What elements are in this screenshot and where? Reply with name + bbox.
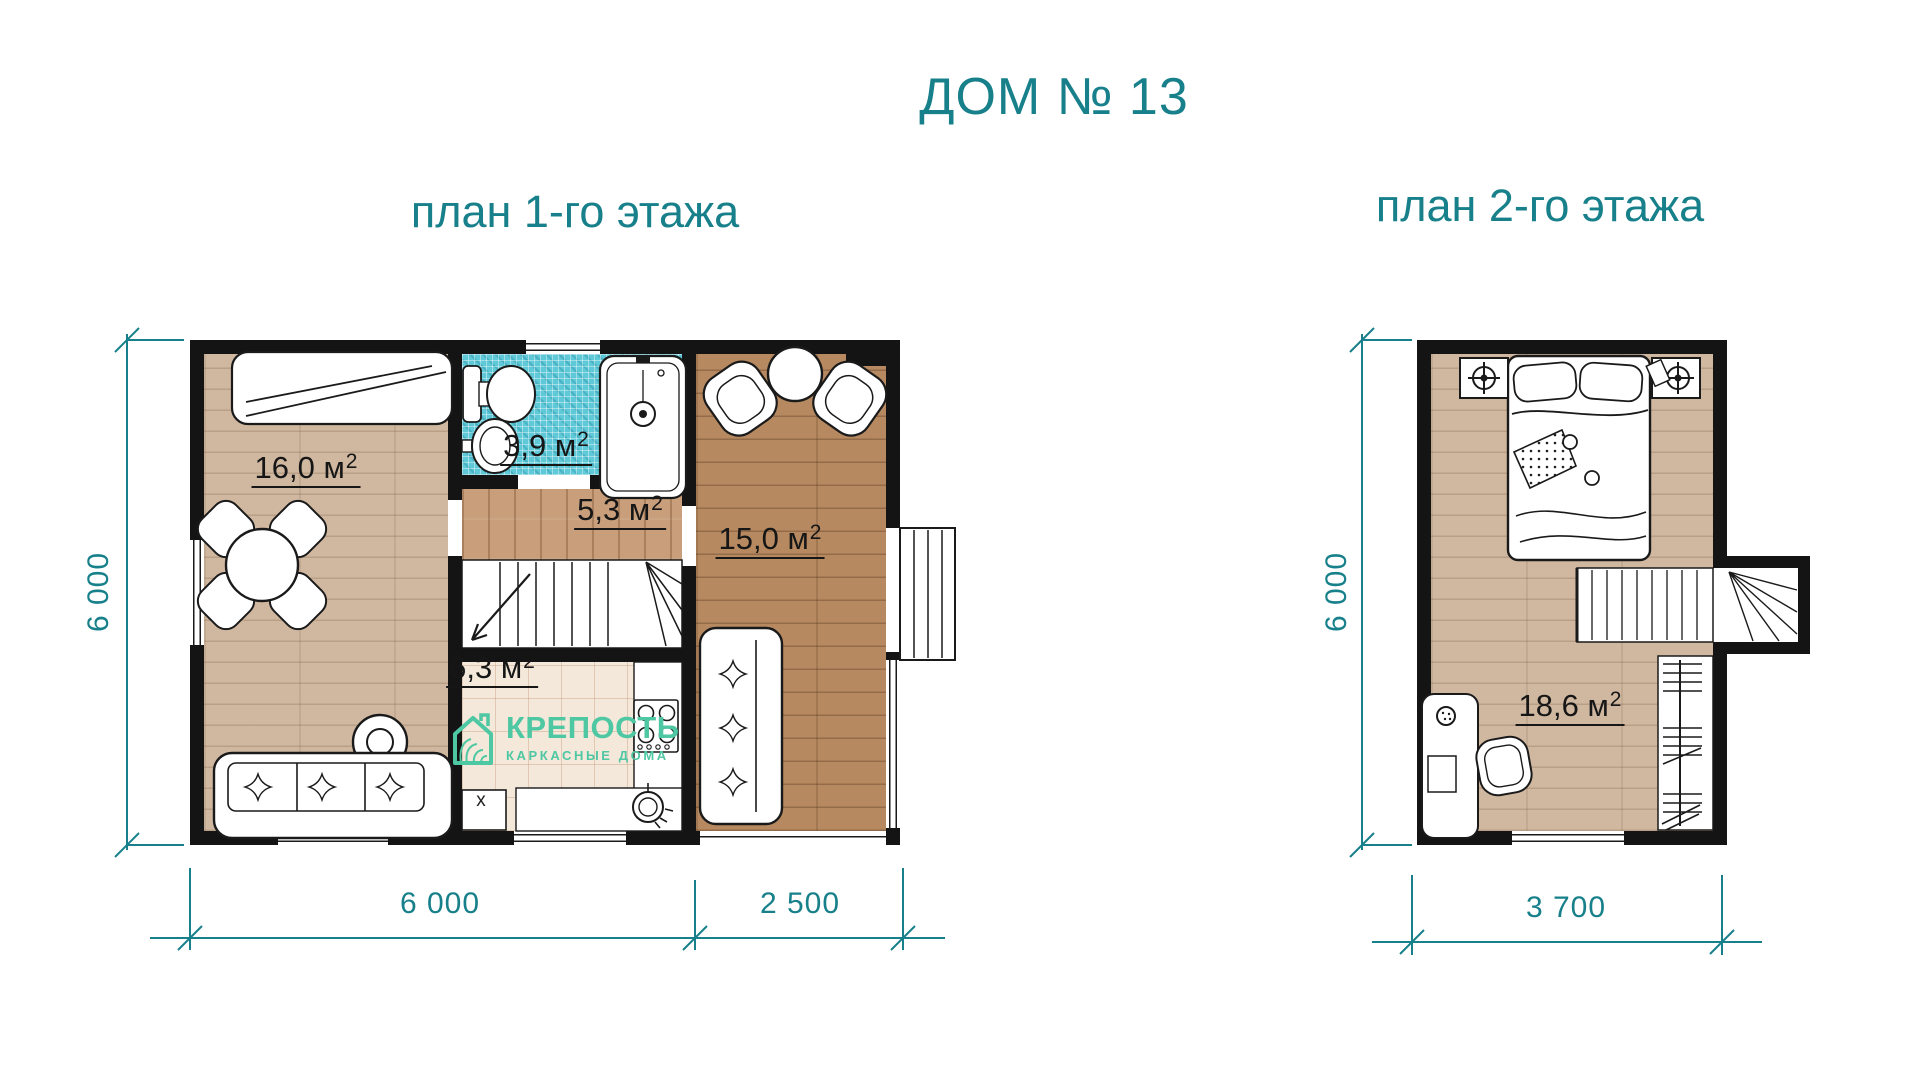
- room-area-label-hall: 5,3 м2: [574, 492, 666, 530]
- room-area-label-lounge: 15,0 м2: [716, 521, 825, 559]
- room-area-label-bedroom: 18,6 м2: [1516, 688, 1625, 726]
- interior-wall: [448, 354, 462, 500]
- plan-title-first-floor: план 1-го этажа: [411, 186, 739, 238]
- area-value: 16,0 м: [255, 450, 345, 485]
- area-value: 18,6 м: [1519, 688, 1609, 723]
- window-living-left: [190, 540, 204, 645]
- interior-wall: [448, 556, 462, 831]
- window-kitchen-bottom: [514, 831, 626, 845]
- logo-text: КРЕПОСТЬ КАРКАСНЫЕ ДОМА: [506, 712, 680, 762]
- area-value: 6,3 м: [449, 650, 522, 685]
- door-opening-lounge: [682, 506, 696, 566]
- room-area-label-living: 16,0 м2: [252, 450, 361, 488]
- exterior-wall-first-floor: [190, 340, 900, 845]
- area-value: 3,9 м: [503, 428, 576, 463]
- area-exponent: 2: [651, 492, 663, 516]
- window-lounge-bottom: [700, 831, 886, 845]
- logo-name: КРЕПОСТЬ: [506, 712, 680, 743]
- dim-label-sf-width: 3 700: [1526, 891, 1606, 925]
- dim-label-ff-width-2: 2 500: [760, 887, 840, 921]
- window-living-bottom: [278, 831, 388, 845]
- wall-notch: [846, 354, 886, 366]
- window-bathroom: [526, 340, 600, 354]
- room-area-label-kitchen: 6,3 м2: [446, 650, 538, 688]
- floor-plan-sheet: ДОМ № 13 план 1-го этажа план 2-го этажа: [0, 0, 1920, 1080]
- plan-title-second-floor: план 2-го этажа: [1376, 180, 1704, 232]
- area-exponent: 2: [810, 521, 822, 545]
- stair-bumpout: [1727, 556, 1810, 654]
- logo-house-icon: [450, 712, 496, 768]
- dim-line-ff-left: [127, 334, 184, 850]
- dim-label-ff-height: 6 000: [82, 552, 116, 632]
- interior-wall: [462, 475, 518, 489]
- door-opening-living-room: [448, 500, 462, 556]
- interior-wall: [682, 354, 696, 506]
- door-opening-bathroom: [518, 475, 590, 489]
- dim-line-sf-left: [1362, 334, 1412, 850]
- area-value: 5,3 м: [577, 492, 650, 527]
- dim-label-sf-height: 6 000: [1320, 552, 1354, 632]
- stair-passage-opening: [1713, 568, 1727, 642]
- window-lounge-right: [886, 660, 900, 828]
- interior-wall: [590, 475, 682, 489]
- area-exponent: 2: [523, 650, 535, 674]
- area-value: 15,0 м: [719, 521, 809, 556]
- logo-tagline: КАРКАСНЫЕ ДОМА: [506, 749, 680, 762]
- area-exponent: 2: [1610, 688, 1622, 712]
- exterior-wall-second-floor: [1417, 340, 1727, 845]
- window-bedroom-bottom: [1512, 831, 1624, 845]
- area-exponent: 2: [577, 428, 589, 452]
- entry-porch: [900, 528, 955, 660]
- washing-machine-label: x: [476, 790, 486, 812]
- brand-logo: КРЕПОСТЬ КАРКАСНЫЕ ДОМА: [450, 712, 680, 768]
- page-title: ДОМ № 13: [919, 67, 1189, 127]
- interior-wall: [682, 566, 696, 831]
- dim-label-ff-width-1: 6 000: [400, 887, 480, 921]
- entry-door-opening: [886, 528, 900, 652]
- room-area-label-bathroom: 3,9 м2: [500, 428, 592, 466]
- area-exponent: 2: [346, 450, 358, 474]
